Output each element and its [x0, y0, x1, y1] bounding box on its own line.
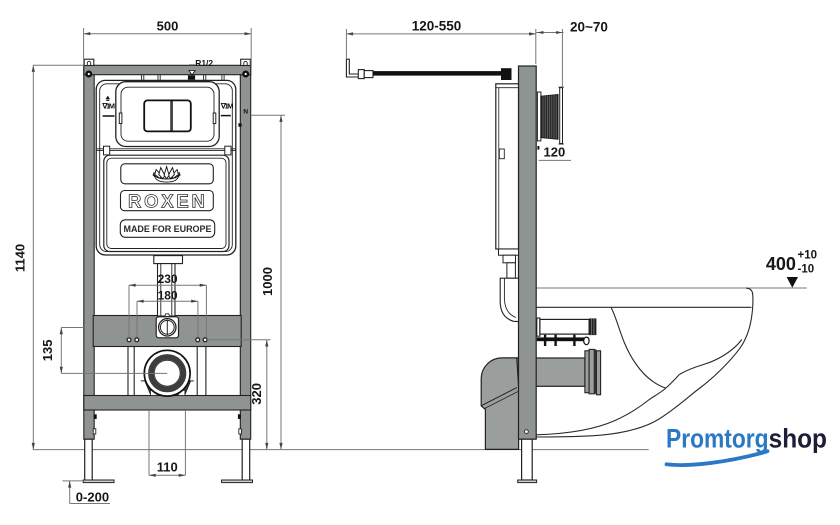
svg-text:20~70: 20~70 [570, 20, 608, 35]
svg-text:180: 180 [158, 289, 178, 303]
svg-text:120: 120 [544, 145, 566, 160]
svg-text:1140: 1140 [13, 244, 28, 272]
svg-text:400: 400 [766, 254, 796, 274]
svg-text:MADE FOR EUROPE: MADE FOR EUROPE [124, 224, 212, 234]
svg-text:500: 500 [157, 19, 179, 34]
svg-text:110: 110 [157, 460, 178, 475]
svg-text:shop: shop [769, 424, 827, 454]
svg-text:1000: 1000 [260, 267, 275, 296]
svg-text:-10: -10 [798, 264, 815, 276]
svg-text:0-200: 0-200 [76, 489, 109, 504]
svg-text:∇1M: ∇1M [101, 102, 115, 111]
svg-text:+10: +10 [798, 250, 818, 262]
svg-text:R1/2: R1/2 [195, 58, 213, 68]
svg-text:230: 230 [158, 272, 178, 286]
svg-text:120-550: 120-550 [412, 19, 462, 34]
svg-text:∇1M: ∇1M [220, 102, 234, 111]
svg-text:N: N [243, 109, 248, 116]
svg-text:ROXEN: ROXEN [128, 190, 208, 211]
svg-text:135: 135 [40, 340, 55, 362]
svg-text:Promtorg: Promtorg [666, 424, 769, 454]
svg-text:320: 320 [249, 383, 264, 405]
